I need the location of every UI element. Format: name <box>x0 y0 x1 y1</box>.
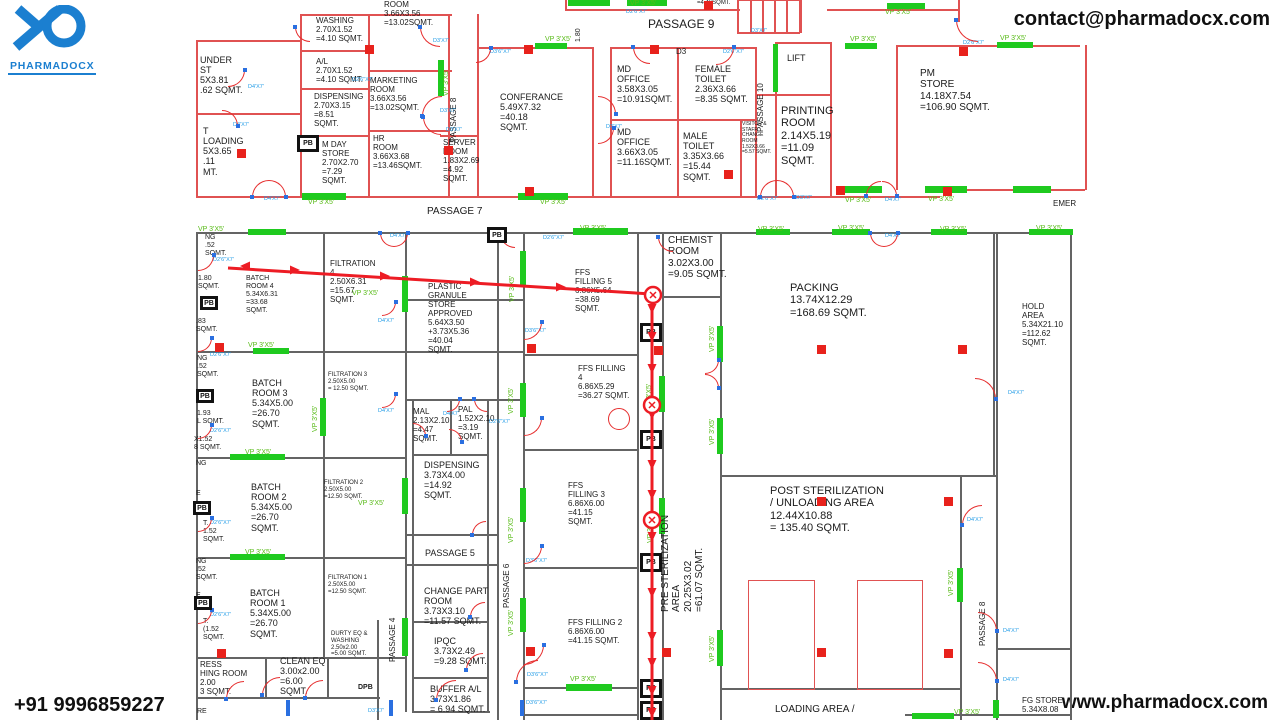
door-hinge <box>994 397 998 401</box>
wall-segment <box>610 47 612 197</box>
room-label: EMER <box>1053 199 1076 208</box>
door-hinge <box>895 194 899 198</box>
view-panel <box>1013 186 1051 193</box>
door-arc <box>380 233 394 247</box>
room-label: DISPENSING2.70X3.15=8.51SQMT. <box>314 92 363 128</box>
view-panel <box>402 618 408 656</box>
view-panel <box>402 276 408 312</box>
door-hinge <box>464 668 468 672</box>
vp-label: VP 3'X5' <box>245 549 271 557</box>
vp-label: VP 3'X5' <box>630 0 656 8</box>
vp-label: VP 3'X5' <box>709 326 717 352</box>
room-label: 1.80 <box>575 28 583 42</box>
door-hinge <box>470 533 474 537</box>
door-hinge <box>458 397 462 401</box>
room-label: PACKING13.74X12.29=168.69 SQMT. <box>790 282 867 319</box>
wall-segment <box>993 232 995 476</box>
room-label: PASSAGE 6 <box>502 564 511 608</box>
door-hinge <box>460 440 464 444</box>
wall-segment <box>637 232 639 720</box>
door-hinge <box>418 25 422 29</box>
column-marker <box>817 648 826 657</box>
pass-box: PB <box>640 679 662 698</box>
room-label: WASHING2.70X1.52=4.10 SQMT. <box>316 16 363 43</box>
column-marker <box>944 497 953 506</box>
room-label: PASSAGE 9 <box>648 18 714 32</box>
vp-label: VP 3'X5' <box>352 290 378 298</box>
door-size-label: D3'6"X7' <box>526 700 547 706</box>
door-hinge <box>243 68 247 72</box>
door-size-label: D3'X7' <box>751 28 767 34</box>
door-size-label: D2'6"X7' <box>489 419 510 425</box>
door-hinge <box>792 195 796 199</box>
door-size-label: D2'6"X7' <box>210 428 231 434</box>
view-panel <box>717 326 723 362</box>
room-label: FFSFILLING 56.86X5.64=38.69SQMT. <box>575 268 612 313</box>
room-label: E <box>196 490 201 498</box>
door-arc <box>658 237 673 252</box>
pass-box: PB <box>640 701 662 720</box>
room-label: DISPENSING3.73X4.00=14.92SQMT. <box>424 460 480 501</box>
door-hinge <box>378 231 382 235</box>
room-label: VISITOR &STAFFCHANGEROOM1.52X3.66=5.57 S… <box>742 122 771 156</box>
wall-segment <box>196 557 405 559</box>
door-hinge <box>260 693 264 697</box>
wall-segment <box>800 0 802 33</box>
vp-label: VP 3'X5' <box>580 225 606 233</box>
door-hinge <box>656 235 660 239</box>
vp-label: VP 3'X5' <box>508 388 516 414</box>
room-label: MDOFFICE3.58X3.05=10.91SQMT. <box>617 64 672 105</box>
wall-segment <box>300 88 368 90</box>
equipment-outline <box>748 580 815 690</box>
door-size-label: D2'6"X7' <box>543 235 564 241</box>
room-label: PMSTORE14.18X7.54=106.90 SQMT. <box>920 68 990 113</box>
door-size-label: D4'X7' <box>1008 390 1024 396</box>
pass-box: PB <box>196 389 214 403</box>
vp-label: VP 3'X5' <box>885 9 911 17</box>
door-arc <box>436 680 456 700</box>
room-label: NG.52SQMT. <box>197 355 218 379</box>
wall-segment <box>196 232 198 720</box>
door-size-label: D4'X7' <box>443 411 459 417</box>
column-marker <box>662 648 671 657</box>
equipment-circle <box>608 408 630 430</box>
room-label: RE <box>197 708 207 716</box>
door-hinge <box>540 544 544 548</box>
door-arc <box>524 418 542 436</box>
wall-segment <box>1070 232 1072 720</box>
door-size-label: D4'X7' <box>1003 677 1019 683</box>
door-size-label: D3'X7' <box>446 127 462 133</box>
door-size-label: D3'X7' <box>368 708 384 714</box>
door-arc <box>524 322 542 340</box>
door-arc <box>870 233 884 247</box>
pass-box: PB <box>487 227 507 243</box>
view-panel <box>520 488 526 522</box>
room-label: PRE STERILIZATIONAREA20.25X3.02=61.07 SQ… <box>660 515 705 612</box>
room-label: LIFT <box>787 53 806 63</box>
door-hinge <box>717 386 721 390</box>
wall-segment <box>412 677 487 679</box>
wall-segment <box>327 657 329 698</box>
room-label: 1.80SQMT. <box>198 275 219 291</box>
room-label: LOADING AREA / <box>775 704 854 715</box>
room-label: D3 <box>676 47 686 56</box>
door-hinge <box>472 397 476 401</box>
room-label: FILTRATION 32.50X5.00= 12.50 SQMT. <box>328 372 368 392</box>
room-label: FFS FILLING 26.86X6.00=41.15 SQMT. <box>568 618 622 645</box>
door-arc <box>420 27 440 47</box>
view-panel <box>717 418 723 454</box>
door-hinge <box>995 629 999 633</box>
door-arc <box>382 302 396 316</box>
wall-segment <box>565 0 567 10</box>
vp-label: VP 3'X5' <box>709 419 717 445</box>
room-label: HOLDAREA5.34X21.10=112.62SQMT. <box>1022 302 1063 347</box>
wall-segment <box>1085 45 1087 190</box>
door-hinge <box>421 115 425 119</box>
column-marker <box>944 649 953 658</box>
door-jamb <box>286 700 290 716</box>
door-arc <box>472 521 486 535</box>
wall-segment <box>300 50 368 52</box>
door-hinge <box>394 300 398 304</box>
room-label: CONFERANCE5.49X7.32=40.18SQMT. <box>500 92 563 133</box>
room-label: ROOM3.66X3.56=13.02SQMT. <box>384 0 433 27</box>
room-label: CHEMISTROOM3.02X3.00=9.05 SQMT. <box>668 235 727 280</box>
door-hinge <box>758 195 762 199</box>
wall-segment <box>196 113 300 115</box>
view-panel <box>773 44 778 92</box>
column-marker <box>526 647 535 656</box>
wall-segment <box>377 620 379 720</box>
room-label: BATCHROOM 15.34X5.00=26.70SQMT. <box>250 588 291 639</box>
room-label: NG.52SQMT. <box>196 558 217 582</box>
door-hinge <box>540 416 544 420</box>
door-arc <box>198 338 212 352</box>
door-size-label: D2'6"X7' <box>213 257 234 263</box>
door-arc <box>866 181 881 196</box>
door-hinge <box>406 231 410 235</box>
pass-box: PB <box>297 135 319 152</box>
door-hinge <box>864 194 868 198</box>
wall-segment <box>662 232 664 720</box>
door-hinge <box>210 423 214 427</box>
room-label: MALETOILET3.35X3.66=15.44SQMT. <box>683 131 724 182</box>
pass-box: PB <box>194 596 212 610</box>
wall-segment <box>323 232 325 658</box>
vp-label: VP 3'X5' <box>358 500 384 508</box>
wall-segment <box>196 457 405 459</box>
vp-label: VP 3'X5' <box>940 226 966 234</box>
wall-segment <box>523 354 637 356</box>
door-hinge <box>394 392 398 396</box>
door-hinge <box>542 643 546 647</box>
door-hinge <box>612 126 616 130</box>
wall-segment <box>610 119 755 121</box>
room-label: FILTRATION 12.50X5.00=12.50 SQMT. <box>328 575 367 595</box>
vp-label: VP 3'X5' <box>948 570 956 596</box>
door-size-label: D4'X7' <box>248 84 264 90</box>
door-arc <box>198 255 214 271</box>
vp-label: VP 3'X5' <box>308 199 334 207</box>
wall-segment <box>196 40 198 197</box>
vp-label: VP 3'X5' <box>443 70 451 96</box>
vp-label: VP 3'X5' <box>838 225 864 233</box>
wall-segment <box>896 45 1080 47</box>
door-hinge <box>424 434 428 438</box>
door-hinge <box>960 523 964 527</box>
equipment-outline <box>857 580 923 690</box>
vp-label: VP 3'X5' <box>928 196 954 204</box>
door-hinge <box>995 679 999 683</box>
room-label: M DAYSTORE2.70X2.70=7.29SQMT. <box>322 140 358 185</box>
vp-label: VP 3'X5' <box>1036 225 1062 233</box>
wall-segment <box>677 47 679 197</box>
room-label: BATCHROOM 25.34X5.00=26.70SQMT. <box>251 482 292 533</box>
wall-segment <box>196 351 523 353</box>
door-arc <box>476 48 491 63</box>
column-marker <box>217 649 226 658</box>
room-label: MDOFFICE3.66X3.05=11.16SQMT. <box>617 127 672 168</box>
door-hinge <box>210 336 214 340</box>
column-marker <box>959 47 968 56</box>
door-arc <box>516 660 538 682</box>
door-arc <box>423 117 441 135</box>
room-label: FFS FILLING46.86X5.29=36.27 SQMT. <box>578 364 629 400</box>
wall-segment <box>662 296 721 298</box>
vp-label: VP 3'X5' <box>540 199 566 207</box>
wall-segment <box>896 45 898 190</box>
pass-box: PB <box>200 296 218 310</box>
column-marker <box>836 186 845 195</box>
room-label: FILTRATION 22.50X5.00=12.50 SQMT. <box>324 480 363 500</box>
pass-box: PB <box>640 323 662 342</box>
room-label: MARKETINGROOM3.66X3.56=13.02SQMT. <box>370 76 419 112</box>
wall-segment <box>755 94 830 96</box>
view-panel <box>566 684 612 691</box>
view-panel <box>568 0 610 6</box>
door-hinge <box>732 45 736 49</box>
wall-segment <box>775 42 830 44</box>
vp-label: VP 3'X5' <box>850 36 876 44</box>
room-label: HRROOM3.66X3.68=13.46SQMT. <box>373 134 422 170</box>
room-label: BATCHROOM 45.34X6.31=33.68SQMT. <box>246 275 278 315</box>
view-panel <box>320 398 326 436</box>
door-size-label: D2'6"X7' <box>210 612 231 618</box>
door-hinge <box>717 358 721 362</box>
door-size-label: D4'X7' <box>378 408 394 414</box>
wall-segment <box>487 399 489 712</box>
room-label: PASSAGE 8 <box>449 98 458 142</box>
room-label: DPB <box>358 684 373 692</box>
door-arc <box>382 394 396 408</box>
vp-label: VP 3'X5' <box>545 36 571 44</box>
wall-segment <box>523 714 637 716</box>
wall-segment <box>196 40 300 42</box>
view-panel <box>993 700 999 718</box>
wall-segment <box>565 9 740 11</box>
room-label: BATCHROOM 35.34X5.00=26.70SQMT. <box>252 378 293 429</box>
column-marker <box>958 345 967 354</box>
room-label: PASSAGE 5 <box>425 548 475 558</box>
door-hinge <box>614 112 618 116</box>
pass-box: PB <box>640 553 662 572</box>
door-arc <box>252 180 269 197</box>
pass-box: PB <box>193 501 211 515</box>
view-panel <box>659 376 665 412</box>
wall-segment <box>405 399 523 401</box>
door-size-label: D2'6"X7' <box>626 9 647 15</box>
door-hinge <box>489 46 493 50</box>
door-size-label: D4'X7' <box>378 318 394 324</box>
vp-label: VP 3'X5' <box>245 449 271 457</box>
door-hinge <box>631 45 635 49</box>
vp-label: VP 3'X5' <box>954 709 980 717</box>
wall-segment <box>592 47 594 197</box>
door-hinge <box>293 25 297 29</box>
vp-label: VP 3'X5' <box>1000 35 1026 43</box>
door-size-label: D4'X7' <box>1003 628 1019 634</box>
door-hinge <box>540 320 544 324</box>
column-marker <box>365 45 374 54</box>
column-marker <box>704 1 713 10</box>
wall-segment <box>958 0 960 22</box>
vp-label: VP 3'X5' <box>845 197 871 205</box>
staircase <box>737 0 800 33</box>
door-arc <box>956 20 978 42</box>
room-label: PASSAGE 4 <box>388 618 397 662</box>
door-hinge <box>250 195 254 199</box>
door-hinge <box>896 231 900 235</box>
wall-segment <box>523 449 637 451</box>
column-marker <box>943 187 952 196</box>
wall-segment <box>405 564 497 566</box>
column-marker <box>215 343 224 352</box>
door-size-label: D2'6"X7' <box>210 520 231 526</box>
staircase-step <box>774 0 776 33</box>
door-hinge <box>434 698 438 702</box>
view-panel <box>912 713 954 719</box>
vp-label: VP 3'X5' <box>312 406 320 432</box>
vp-label: VP 3'X5' <box>646 384 654 410</box>
view-panel <box>248 229 286 235</box>
wall-segment <box>996 232 998 720</box>
vp-label: VP 3'X5' <box>508 610 516 636</box>
view-panel <box>957 568 963 602</box>
door-hinge <box>284 195 288 199</box>
column-marker <box>524 45 533 54</box>
door-size-label: D3'X7' <box>440 108 456 114</box>
column-marker <box>817 497 826 506</box>
vp-label: VP 3'X5' <box>570 676 596 684</box>
door-size-label: D3'6"X7' <box>490 49 511 55</box>
door-hinge <box>303 696 307 700</box>
view-panel <box>402 478 408 514</box>
wall-segment <box>440 135 477 137</box>
room-label: SERVERROOM1.83X2.69=4.92SQMT. <box>443 138 479 183</box>
door-hinge <box>954 18 958 22</box>
room-label: PLASTICGRANULESTOREAPPROVED5.64X3.50+3.7… <box>428 282 472 354</box>
door-size-label: D2'6"X7' <box>210 352 231 358</box>
door-hinge <box>224 697 228 701</box>
wall-segment <box>996 648 1070 650</box>
vp-label: VP 3'X5' <box>508 517 516 543</box>
floor-plan: UNDERST5X3.81.62 SQMT.TLOADING5X3.65.11M… <box>0 0 1280 720</box>
vp-label: VP 3'X5' <box>709 636 717 662</box>
room-label: T.(1.52SQMT. <box>203 618 224 642</box>
door-hinge <box>468 615 472 619</box>
column-marker <box>444 146 453 155</box>
column-marker <box>237 149 246 158</box>
door-arc <box>962 505 982 525</box>
vp-label: VP 3'X5' <box>647 517 655 543</box>
door-arc <box>760 180 777 197</box>
door-size-label: D3'X7' <box>796 195 812 201</box>
room-label: FFSFILLING 36.86X6.00=41.15SQMT. <box>568 481 605 526</box>
wall-segment <box>412 399 414 712</box>
column-marker <box>654 346 663 355</box>
vp-label: VP 3'X5' <box>248 342 274 350</box>
wall-segment <box>523 567 637 569</box>
column-marker <box>650 45 659 54</box>
vp-label: VP 3'X5' <box>198 226 224 234</box>
view-panel <box>717 630 723 666</box>
room-label: DURTY EQ &WASHING2.50x2.00=5.00 SQMT. <box>331 631 367 658</box>
door-jamb <box>520 700 524 716</box>
door-hinge <box>236 124 240 128</box>
column-marker <box>817 345 826 354</box>
room-label: .83SQMT. <box>196 318 217 334</box>
room-label: FG STORE5.34X8.08 <box>1022 696 1063 714</box>
wall-segment <box>300 14 302 197</box>
door-hinge <box>514 680 518 684</box>
door-jamb <box>389 700 393 716</box>
view-panel <box>520 251 526 285</box>
vp-label: VP 3'X5' <box>758 226 784 234</box>
room-label: PRINTINGROOM2.14X5.19=11.09SQMT. <box>781 105 834 167</box>
view-panel <box>520 598 526 632</box>
door-arc <box>705 360 719 374</box>
door-arc <box>716 47 734 65</box>
pass-box: PB <box>640 430 662 449</box>
door-hinge <box>210 516 214 520</box>
door-hinge <box>212 253 216 257</box>
room-label: =4.46SQMT. <box>697 0 731 7</box>
room-label: FEMALETOILET2.36X3.66=8.35 SQMT. <box>695 64 748 105</box>
staircase-step <box>786 0 788 33</box>
view-panel <box>520 383 526 417</box>
room-label: POST STERILIZATION / UNLOADING AREA12.44… <box>770 485 884 535</box>
door-size-label: D2'6"X7' <box>352 77 373 83</box>
wall-segment <box>720 475 996 477</box>
column-marker <box>527 344 536 353</box>
door-hinge <box>868 231 872 235</box>
column-marker <box>724 170 733 179</box>
room-label: PASSAGE 7 <box>427 206 482 217</box>
door-arc <box>633 47 650 64</box>
door-arc <box>884 233 898 247</box>
column-marker <box>525 187 534 196</box>
room-label: NG <box>196 460 207 468</box>
door-arc <box>422 96 442 116</box>
wall-segment <box>497 232 499 720</box>
vp-label: VP 3'X5' <box>509 276 517 302</box>
